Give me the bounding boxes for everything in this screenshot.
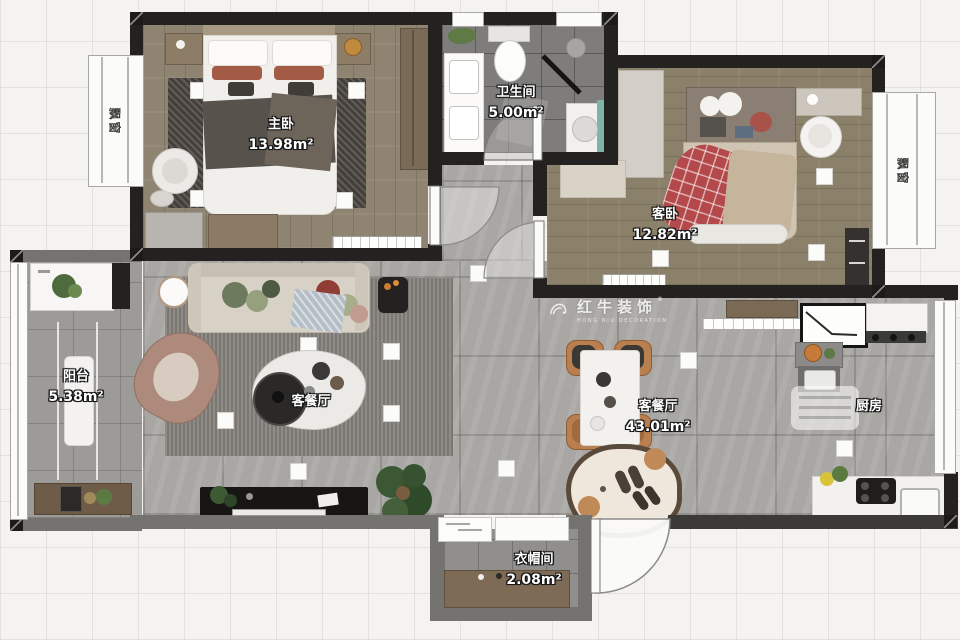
food-plate	[804, 344, 822, 362]
window-frame-line	[101, 57, 103, 183]
pillow	[208, 40, 268, 66]
vanity-window	[452, 12, 484, 27]
room-area: 13.98m²	[248, 135, 313, 155]
burner	[881, 494, 889, 502]
spotlight	[680, 352, 697, 369]
wall-corner	[604, 12, 617, 25]
flower	[393, 280, 399, 286]
accent-pillow	[212, 66, 262, 80]
throw-blanket	[290, 289, 347, 334]
hallway-floor	[442, 165, 533, 261]
low-cabinet	[145, 212, 203, 250]
folded-clothes	[700, 117, 726, 137]
spotlight	[383, 343, 400, 360]
spotlight	[383, 405, 400, 422]
flower	[384, 283, 391, 290]
washer-drum	[572, 116, 598, 142]
accent-pillow	[274, 66, 324, 80]
toilet-bowl	[494, 40, 526, 82]
table-item	[330, 376, 344, 390]
wall-corner	[944, 515, 957, 528]
spotlight	[336, 192, 353, 209]
pillow	[272, 40, 332, 66]
herb	[824, 348, 835, 359]
room-name: 阳台	[48, 368, 103, 387]
living-dining-label: 客餐厅 43.01m²	[625, 398, 690, 437]
wall	[10, 518, 142, 531]
note-line	[799, 406, 851, 409]
wall	[578, 515, 592, 621]
table-setting	[596, 372, 611, 387]
artwork	[60, 486, 82, 512]
wall	[130, 515, 432, 529]
burner	[861, 482, 869, 490]
wall	[944, 285, 958, 300]
plant-pot	[396, 486, 410, 500]
spotlight	[470, 265, 487, 282]
sink	[449, 60, 479, 94]
wall	[604, 12, 618, 165]
room-area: 12.82m²	[632, 225, 697, 245]
sink	[449, 106, 479, 140]
bay-window-right-label: 飘窗	[895, 157, 912, 185]
burner	[861, 494, 869, 502]
lamp	[176, 40, 185, 49]
room-name: 客餐厅	[625, 398, 690, 417]
sofa-pillow	[222, 282, 248, 308]
master-door-leaf	[430, 186, 440, 245]
room-area: 2.08m²	[506, 570, 561, 590]
folded-clothes	[735, 126, 753, 138]
spotlight	[290, 463, 307, 480]
room-name: 客卧	[632, 206, 697, 225]
spotlight	[836, 440, 853, 457]
balcony-window	[10, 262, 28, 520]
faucet	[38, 270, 50, 273]
wardrobe-divider	[412, 30, 414, 166]
wall-corner	[872, 55, 885, 68]
shower-head	[566, 38, 586, 58]
kitchen-window	[934, 300, 956, 474]
tv-cabinet-shelf	[849, 262, 865, 264]
wall-tv	[232, 509, 326, 516]
tray-item	[272, 391, 284, 403]
balcony-label: 阳台 5.38m²	[48, 368, 103, 407]
registered-mark: ®	[657, 296, 663, 303]
kitchen-label: 厨房	[856, 398, 882, 417]
room-area: 5.00m²	[488, 103, 543, 123]
master-bed-headboard	[203, 25, 335, 35]
room-name: 客餐厅	[291, 393, 330, 412]
cabinet-item	[478, 574, 484, 580]
table-setting	[590, 416, 605, 431]
round-chair-cushion	[162, 158, 188, 184]
spotlight	[217, 412, 234, 429]
mat-cushion	[644, 448, 666, 470]
cabinet-item	[496, 573, 502, 579]
tv-cabinet	[845, 228, 869, 292]
balcony-cabinet	[34, 483, 132, 515]
wall	[604, 55, 885, 68]
accent-pillow	[750, 112, 772, 132]
wardrobe	[400, 28, 429, 170]
sofa-pillow	[350, 305, 368, 323]
decor-item	[246, 493, 253, 500]
watermark-text: 红牛装饰® HONG NIU DECORATION	[577, 296, 668, 324]
accent-pillow	[228, 82, 254, 96]
side-table	[158, 276, 190, 308]
tv-cabinet-shelf	[849, 240, 865, 242]
burner	[872, 334, 879, 341]
wall	[130, 12, 617, 25]
room-area: 43.01m²	[625, 417, 690, 437]
cloakroom-label: 衣帽间 2.08m²	[506, 551, 561, 590]
burner	[881, 482, 889, 490]
room-name: 主卧	[248, 116, 313, 135]
entry-rug	[560, 160, 626, 198]
table-item	[312, 362, 330, 380]
burner	[908, 334, 915, 341]
wall	[437, 152, 484, 165]
bay-window-left-label: 飘窗	[107, 107, 124, 135]
organizer-step	[446, 523, 470, 525]
watermark-subtext: HONG NIU DECORATION	[577, 318, 668, 324]
column	[112, 263, 130, 309]
wall	[10, 250, 142, 262]
burner	[890, 334, 897, 341]
wall	[540, 152, 618, 165]
window-frame-line	[943, 302, 945, 470]
watermark-brand: 红牛装饰	[577, 298, 657, 316]
sofa-armrest	[188, 263, 201, 331]
spotlight	[498, 460, 515, 477]
master-bedroom-label: 主卧 13.98m²	[248, 116, 313, 155]
plant	[68, 284, 82, 298]
sofa-back	[188, 263, 368, 277]
flowers-leaves	[832, 466, 848, 482]
sofa-pillow	[262, 280, 280, 298]
mat-dot	[600, 486, 606, 492]
note-line	[799, 416, 851, 419]
teddy-bear	[344, 38, 362, 56]
range-hood	[866, 303, 928, 333]
bed-end-pillow	[688, 224, 788, 244]
wall-corner	[872, 285, 885, 298]
bull-logo-icon	[548, 299, 570, 321]
room-name: 卫生间	[488, 84, 543, 103]
wall	[130, 248, 442, 261]
floor-plan: 主卧 13.98m² 卫生间 5.00m² 客卧 12.82m² 阳台 5.38…	[0, 0, 960, 640]
pillow	[700, 96, 720, 116]
bathroom-label: 卫生间 5.00m²	[488, 84, 543, 123]
nightstand	[165, 33, 203, 65]
room-name: 衣帽间	[506, 551, 561, 570]
plant	[402, 464, 426, 488]
organizer-step	[458, 529, 482, 531]
pillow	[718, 92, 742, 116]
wall	[668, 515, 958, 529]
window-frame-line	[127, 57, 129, 183]
shoe-cabinet	[495, 517, 569, 541]
window-frame-line	[916, 94, 918, 245]
basket	[84, 492, 96, 504]
plant	[96, 489, 112, 505]
spotlight	[808, 244, 825, 261]
wall	[430, 608, 592, 621]
room-name: 厨房	[856, 398, 882, 417]
window-frame-line	[886, 94, 888, 245]
dresser	[208, 214, 278, 250]
watermark: 红牛装饰® HONG NIU DECORATION	[548, 296, 668, 324]
room-area: 5.38m²	[48, 387, 103, 407]
window-frame-line	[17, 264, 19, 516]
bathroom-window	[556, 12, 602, 27]
spotlight	[816, 168, 833, 185]
spotlight	[348, 82, 365, 99]
wall-corner	[130, 248, 143, 261]
note-line	[799, 396, 851, 399]
table-setting	[604, 396, 616, 408]
desk-item	[806, 93, 819, 106]
living-tag-label: 客餐厅	[291, 393, 330, 412]
guest-bedroom-label: 客卧 12.82m²	[632, 206, 697, 245]
round-chair-cushion	[808, 124, 832, 148]
console-table	[726, 300, 798, 318]
plant	[224, 494, 237, 507]
wall	[533, 152, 547, 216]
wall-corner	[130, 12, 143, 25]
spotlight	[652, 250, 669, 267]
